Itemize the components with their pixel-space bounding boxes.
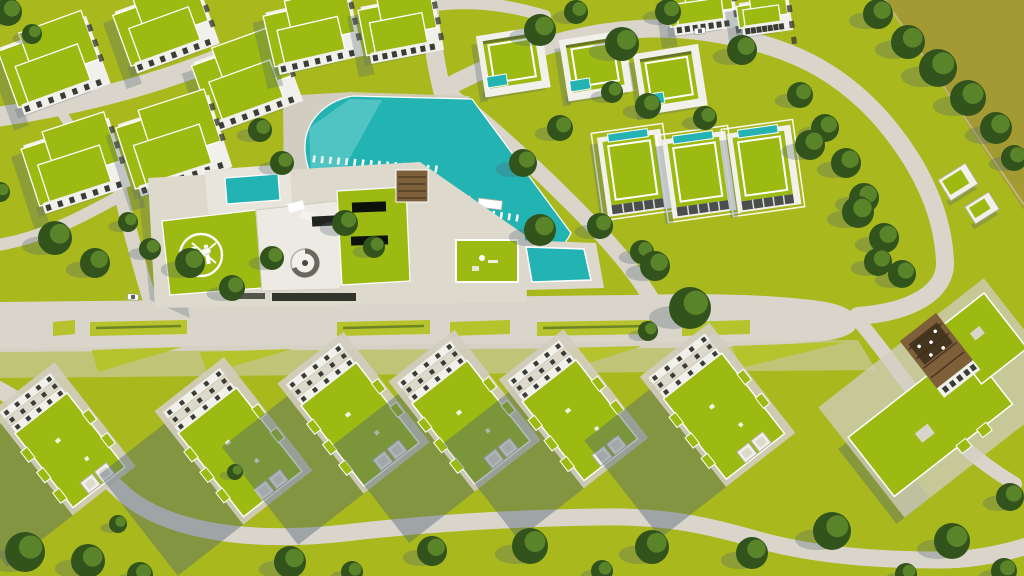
tree-highlight — [29, 26, 41, 38]
tree-highlight — [617, 30, 637, 50]
play-equipment — [479, 255, 485, 261]
tree-highlight — [874, 250, 890, 266]
tree-highlight — [115, 517, 125, 527]
skylight — [352, 201, 386, 212]
tree-highlight — [599, 562, 612, 575]
tree-highlight — [644, 95, 659, 110]
play-equipment — [488, 260, 498, 263]
spiral-stair-core — [302, 260, 308, 266]
tree-highlight — [826, 515, 848, 537]
tree-highlight — [535, 217, 554, 236]
boulevard-median — [450, 320, 510, 336]
tree-highlight — [91, 251, 108, 268]
hedge-row — [272, 293, 356, 301]
helipad-roof — [162, 210, 262, 295]
tree-highlight — [684, 291, 708, 315]
tree-highlight — [853, 199, 872, 218]
amenity-court — [456, 240, 604, 290]
block-window — [789, 21, 795, 29]
tree-highlight — [880, 226, 897, 243]
tree-highlight — [349, 563, 362, 576]
tree-highlight — [991, 115, 1010, 134]
masterplan-render: H — [0, 0, 1024, 576]
tree-highlight — [4, 0, 20, 16]
tree-highlight — [898, 262, 914, 278]
car — [694, 27, 706, 34]
tree-highlight — [572, 2, 586, 16]
tree-highlight — [278, 153, 292, 167]
secondary-pool — [526, 247, 591, 282]
car-windshield — [131, 295, 135, 299]
tree-highlight — [428, 539, 445, 556]
tree-highlight — [256, 120, 270, 134]
tree-highlight — [651, 254, 668, 271]
tree-highlight — [233, 465, 242, 474]
tree-highlight — [228, 277, 243, 292]
block-window — [762, 25, 768, 32]
tree-highlight — [525, 531, 546, 552]
masterplan-svg: H — [0, 0, 1024, 576]
tree-highlight — [932, 52, 954, 74]
tree-highlight — [647, 533, 667, 553]
tree-highlight — [747, 540, 766, 559]
tree-highlight — [556, 117, 571, 132]
tree-highlight — [535, 17, 554, 36]
tree-highlight — [806, 133, 823, 150]
tree-highlight — [19, 535, 42, 558]
tree-highlight — [125, 214, 137, 226]
tree-highlight — [341, 212, 356, 227]
tree-highlight — [1000, 560, 1015, 575]
block-window — [745, 28, 751, 35]
tree-highlight — [371, 238, 384, 251]
tree-highlight — [1006, 485, 1022, 501]
tree-highlight — [186, 251, 203, 268]
tree-highlight — [738, 38, 755, 55]
playground — [456, 240, 518, 282]
block-window — [684, 26, 690, 33]
block-window — [751, 27, 757, 34]
tree-highlight — [268, 248, 282, 262]
tree-highlight — [842, 151, 859, 168]
block-window — [756, 26, 762, 33]
tree-highlight — [645, 323, 657, 335]
tree-highlight — [947, 526, 968, 547]
play-equipment — [472, 266, 479, 271]
tree-highlight — [83, 547, 103, 567]
block-window — [716, 21, 722, 28]
block-window — [787, 5, 793, 13]
clubhouse-upper-pool — [225, 174, 280, 204]
block-window — [791, 37, 797, 45]
block-window — [708, 22, 714, 29]
tree-highlight — [963, 83, 984, 104]
tree-highlight — [874, 2, 891, 19]
tree-highlight — [821, 116, 837, 132]
block-window — [767, 25, 773, 32]
car-windshield — [698, 29, 702, 33]
pergola-courtyard — [396, 170, 428, 202]
tree-highlight — [596, 215, 611, 230]
tree-highlight — [50, 224, 70, 244]
tree-highlight — [519, 151, 535, 167]
block-window — [677, 27, 683, 34]
block-window — [779, 23, 785, 30]
boulevard-median — [53, 320, 75, 336]
block-window — [773, 24, 779, 31]
tree-highlight — [664, 1, 679, 16]
tree-highlight — [147, 240, 160, 253]
tree-highlight — [285, 549, 304, 568]
tree-highlight — [903, 28, 923, 48]
tree-highlight — [796, 84, 811, 99]
car — [127, 294, 138, 301]
tree-highlight — [609, 83, 622, 96]
tree-highlight — [701, 108, 715, 122]
